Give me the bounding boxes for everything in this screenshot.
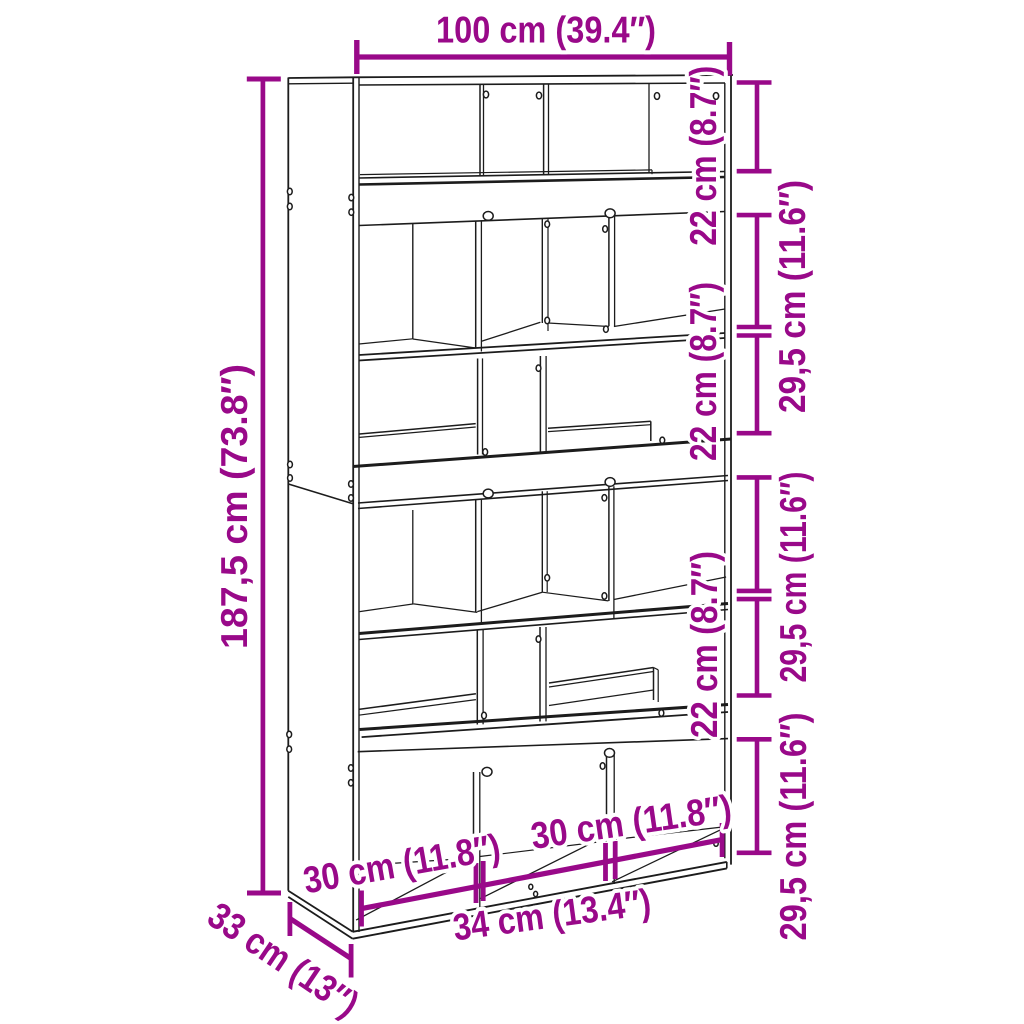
svg-text:22 cm (8.7″): 22 cm (8.7″) [683, 551, 725, 738]
svg-text:29,5 cm (11.6″): 29,5 cm (11.6″) [771, 180, 813, 413]
svg-text:29,5 cm (11.6″): 29,5 cm (11.6″) [772, 472, 814, 683]
svg-text:100 cm (39.4″): 100 cm (39.4″) [436, 9, 656, 51]
svg-text:29,5 cm (11.6″): 29,5 cm (11.6″) [772, 713, 814, 941]
svg-text:22 cm (8.7″): 22 cm (8.7″) [682, 282, 724, 461]
svg-text:187,5 cm (73.8″): 187,5 cm (73.8″) [213, 364, 255, 649]
